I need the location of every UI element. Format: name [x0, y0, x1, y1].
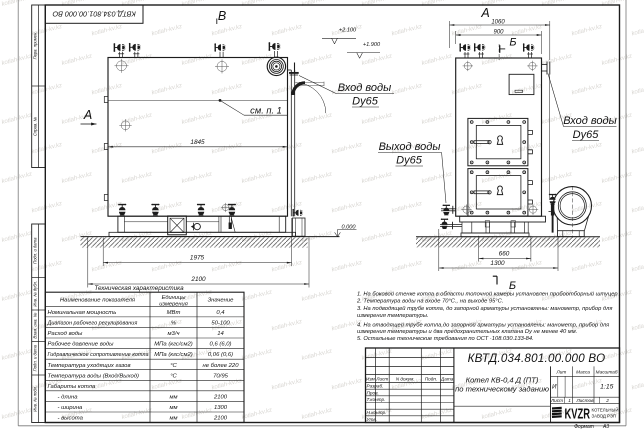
svg-text:Гидравлическое сопротивление к: Гидравлическое сопротивление котла	[48, 352, 149, 358]
svg-text:+1.900: +1.900	[363, 42, 381, 48]
svg-text:измерения температуры и два пр: измерения температуры и два предохраните…	[357, 329, 577, 335]
svg-text:Б: Б	[509, 280, 516, 292]
svg-text:660: 660	[499, 251, 510, 258]
svg-text:Н.контр.: Н.контр.	[367, 410, 387, 415]
svg-text:Подп.: Подп.	[425, 376, 437, 381]
svg-text:Расход воды: Расход воды	[48, 331, 84, 337]
svg-text:мм: мм	[169, 395, 177, 401]
svg-text:МПа (кгс/см2): МПа (кгс/см2)	[154, 352, 193, 358]
svg-text:И: И	[552, 384, 557, 391]
svg-text:Лист: Лист	[375, 376, 388, 381]
svg-text:2: 2	[605, 398, 609, 403]
svg-text:Подп. и дата: Подп. и дата	[33, 344, 38, 371]
svg-text:Пров.: Пров.	[367, 390, 379, 395]
svg-text:по техническому заданию: по техническому заданию	[455, 385, 549, 394]
svg-text:Б: Б	[509, 37, 516, 49]
svg-text:МВт: МВт	[167, 310, 181, 316]
svg-text:Разраб.: Разраб.	[367, 384, 384, 389]
svg-text:Взам. инв. №: Взам. инв. №	[33, 312, 38, 338]
svg-text:900: 900	[493, 29, 504, 35]
svg-text:измерения температуры.: измерения температуры.	[357, 313, 429, 319]
svg-text:1975: 1975	[190, 255, 205, 262]
svg-text:Вход воды: Вход воды	[338, 82, 391, 94]
svg-text:Дата: Дата	[440, 376, 454, 381]
svg-text:Лит: Лит	[556, 370, 567, 375]
svg-text:1845: 1845	[190, 139, 205, 146]
svg-text:КВТД.034.801.00.000 ВО: КВТД.034.801.00.000 ВО	[468, 352, 606, 365]
svg-text:см. п. 1: см. п. 1	[250, 105, 282, 115]
svg-text:2100: 2100	[213, 395, 228, 401]
svg-text:4. На отводящей трубе котла,д: 4. На отводящей трубе котла,до запорной …	[357, 321, 609, 328]
svg-text:1. На боковой стенке котла в: 1. На боковой стенке котла в области топ…	[357, 291, 618, 298]
svg-text:3. На подводящей трубе котла,: 3. На подводящей трубе котла, до запорно…	[357, 305, 612, 312]
svg-text:м3/ч: м3/ч	[168, 331, 180, 337]
svg-text:Рабочее давление воды: Рабочее давление воды	[48, 342, 115, 348]
svg-text:Температура воды (Вход/Выход): Температура воды (Вход/Выход)	[48, 373, 139, 379]
svg-text:Перв. примен.: Перв. примен.	[33, 32, 38, 60]
svg-text:5. Остальные технические треб: 5. Остальные технические требования по О…	[357, 336, 534, 342]
svg-text:50-100: 50-100	[211, 321, 230, 327]
svg-text:Масса: Масса	[576, 370, 590, 375]
svg-text:Диапазон рабочего регулировани: Диапазон рабочего регулирования	[47, 321, 138, 327]
svg-text:мм: мм	[169, 405, 177, 411]
svg-text:- ширина: - ширина	[58, 405, 84, 411]
svg-text:0,06 (0,6): 0,06 (0,6)	[208, 352, 233, 358]
svg-text:Листов: Листов	[575, 398, 594, 403]
svg-text:Изм: Изм	[366, 376, 375, 381]
svg-text:1300: 1300	[490, 260, 505, 267]
svg-text:Выход воды: Выход воды	[379, 141, 441, 153]
svg-text:Номинальная мощность: Номинальная мощность	[48, 310, 117, 316]
svg-text:Dy65: Dy65	[352, 95, 379, 107]
svg-text:0,6 (6,0): 0,6 (6,0)	[210, 342, 232, 348]
svg-text:°С: °С	[170, 363, 177, 369]
svg-text:2. Температура воды на входе: 2. Температура воды на входе 70°С., на в…	[356, 299, 503, 305]
svg-text:МПа (кгс/см2): МПа (кгс/см2)	[154, 342, 193, 348]
svg-text:мм: мм	[169, 416, 177, 422]
svg-text:Инв. № подл.: Инв. № подл.	[33, 386, 38, 412]
svg-text:Dy65: Dy65	[396, 154, 423, 166]
svg-text:1060: 1060	[491, 19, 505, 25]
svg-text:А: А	[83, 108, 92, 122]
svg-text:14: 14	[217, 331, 224, 337]
svg-text:2100: 2100	[190, 276, 206, 283]
svg-text:Утв.: Утв.	[367, 417, 378, 422]
svg-text:КВТД.034.801.00.000 ВО: КВТД.034.801.00.000 ВО	[52, 10, 136, 19]
svg-text:0,4: 0,4	[216, 310, 225, 316]
svg-text:Наименование показателя: Наименование показателя	[60, 298, 136, 304]
svg-text:+2.100: +2.100	[339, 28, 357, 34]
svg-text:КОТЕЛЬНЫЙ: КОТЕЛЬНЫЙ	[592, 408, 619, 413]
svg-text:А3: А3	[602, 424, 609, 430]
svg-text:Техническая характеристика: Техническая характеристика	[94, 285, 184, 292]
svg-text:Масштаб: Масштаб	[596, 370, 618, 375]
svg-text:2100: 2100	[213, 416, 228, 422]
svg-text:KVZR: KVZR	[565, 406, 591, 422]
svg-text:А: А	[480, 6, 489, 20]
svg-text:Справ. №: Справ. №	[33, 117, 38, 136]
svg-text:Т.контр.: Т.контр.	[367, 397, 386, 402]
svg-text:измерения: измерения	[159, 302, 187, 308]
svg-text:Формат: Формат	[574, 424, 594, 430]
svg-text:1:15: 1:15	[600, 384, 613, 391]
svg-text:Значение: Значение	[208, 298, 235, 304]
svg-text:Вход воды: Вход воды	[563, 115, 616, 127]
svg-text:Подп. и дата: Подп. и дата	[33, 237, 38, 264]
svg-text:°С: °С	[170, 373, 177, 379]
svg-text:%: %	[171, 321, 176, 327]
svg-text:N докум.: N докум.	[396, 376, 415, 381]
svg-text:Dy65: Dy65	[573, 129, 600, 141]
svg-text:В: В	[218, 9, 226, 23]
svg-text:ЗАВОД РЭП: ЗАВОД РЭП	[592, 413, 617, 418]
svg-text:Единицы: Единицы	[162, 295, 187, 301]
svg-text:70/95: 70/95	[213, 373, 228, 379]
svg-text:Инв. № дубл.: Инв. № дубл.	[33, 281, 38, 307]
svg-text:1300: 1300	[214, 405, 228, 411]
svg-text:- длина: - длина	[58, 395, 79, 401]
svg-text:Температура уходящих газов: Температура уходящих газов	[48, 363, 131, 369]
svg-text:- высота: - высота	[58, 416, 84, 422]
svg-text:Лист: Лист	[550, 398, 563, 403]
svg-text:Котел КВ-0,4 Д (ПТ): Котел КВ-0,4 Д (ПТ)	[466, 376, 539, 385]
svg-text:1: 1	[568, 398, 571, 403]
svg-text:Габариты котла: Габариты котла	[48, 384, 96, 390]
svg-text:не более 220: не более 220	[203, 363, 240, 369]
